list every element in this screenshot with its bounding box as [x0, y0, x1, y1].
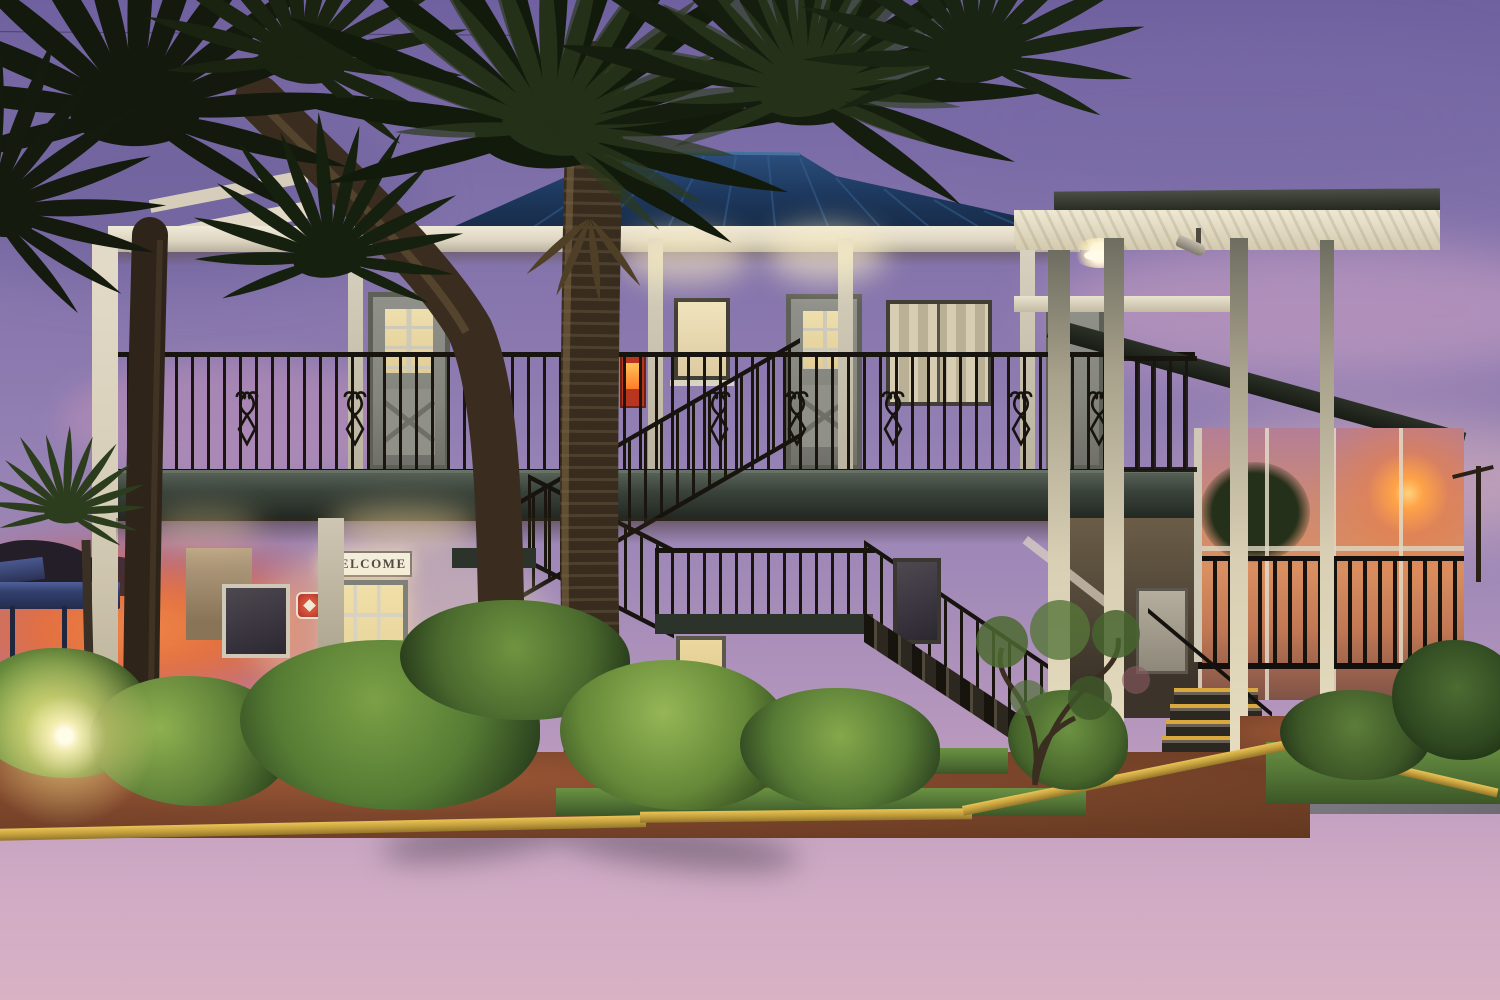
- sapling-shrub: [940, 590, 1180, 790]
- small-palm-crown: [0, 425, 146, 548]
- motel-exterior-photo: WELCOME: [0, 0, 1500, 1000]
